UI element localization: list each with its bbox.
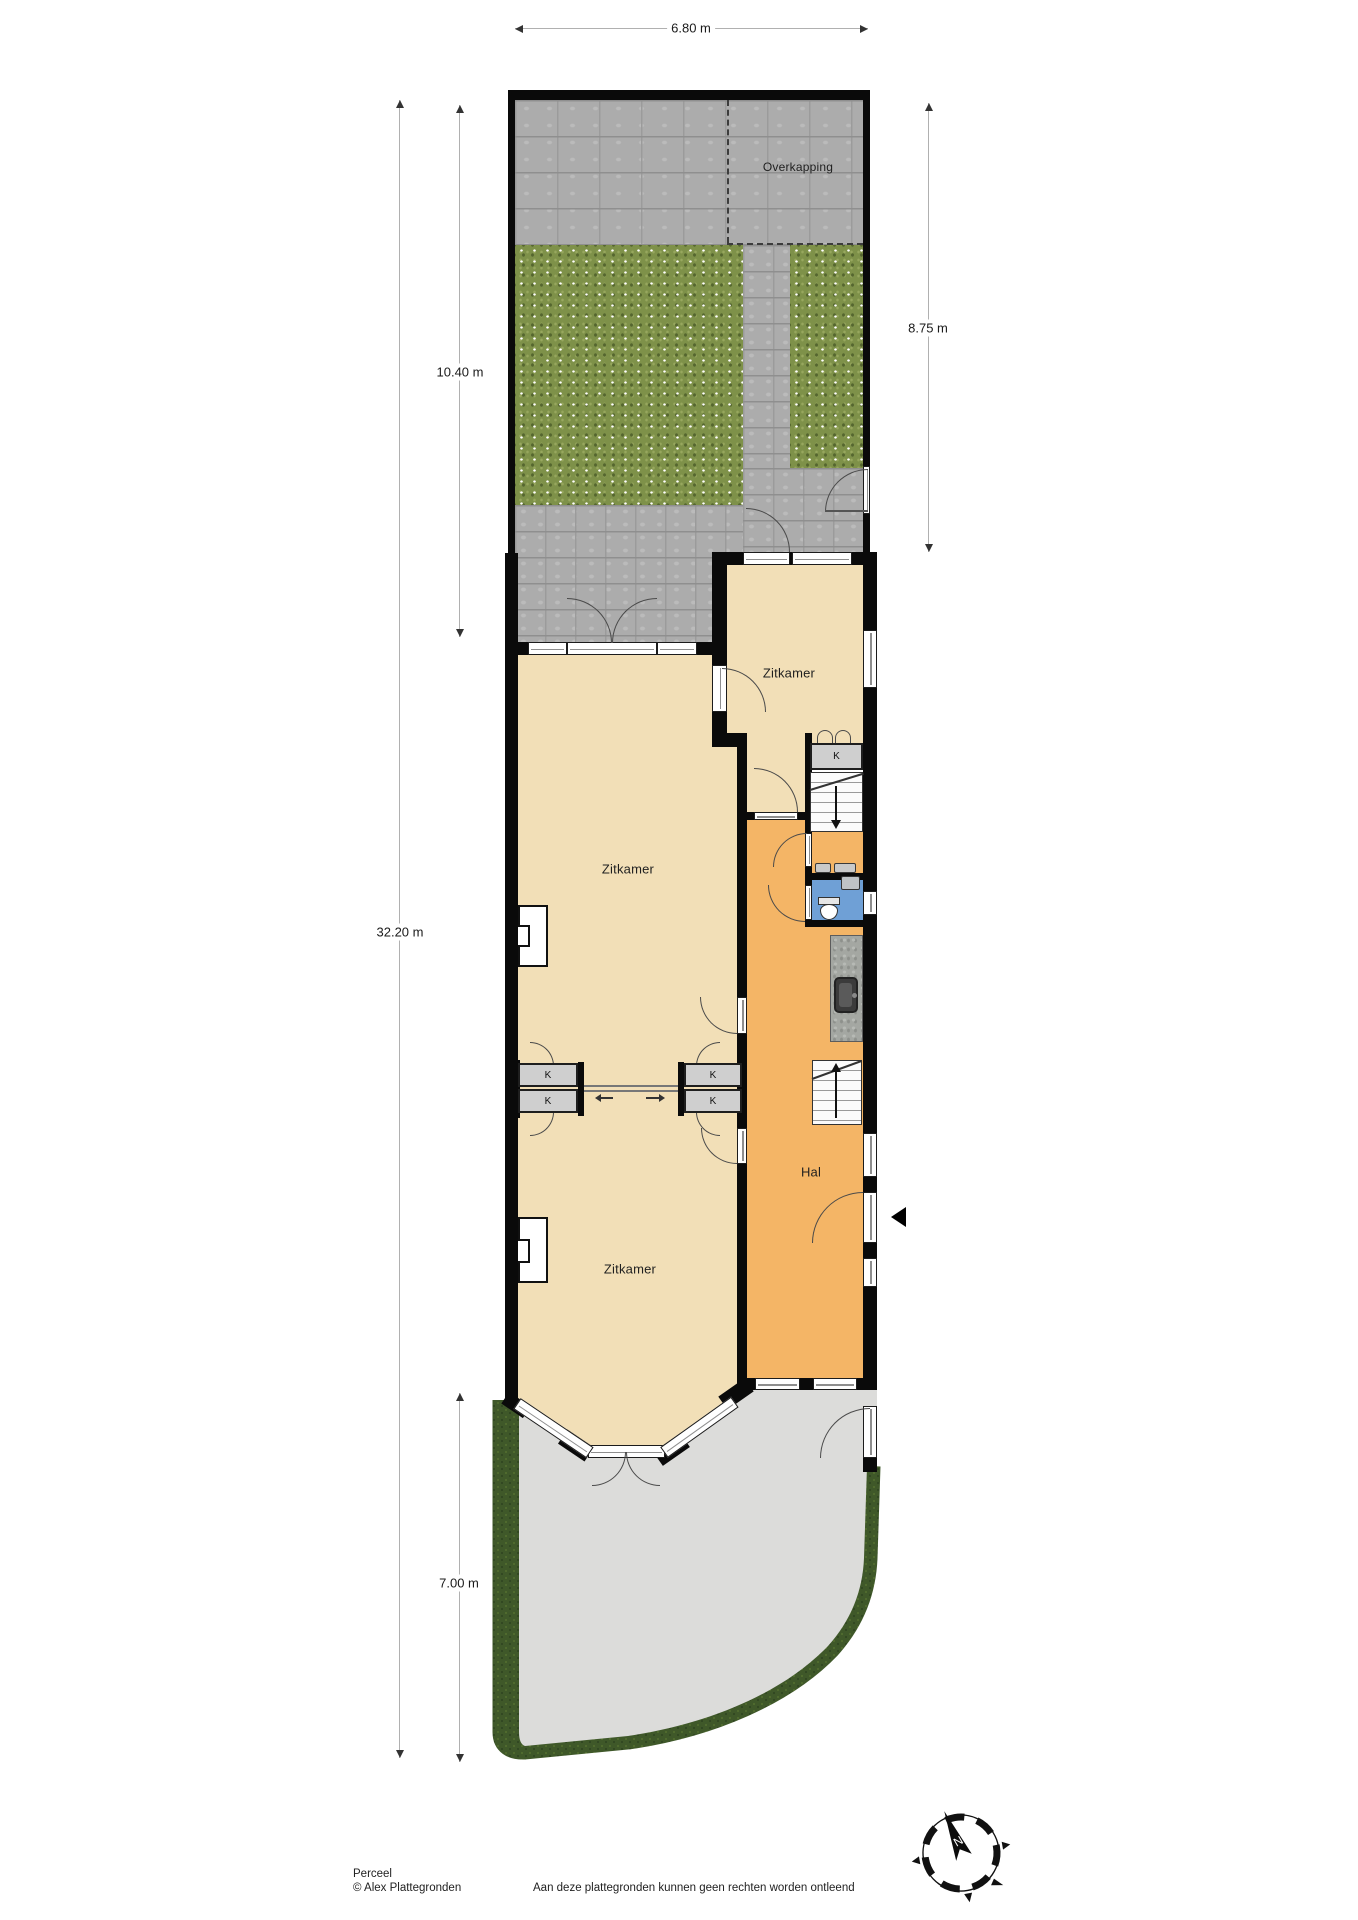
sliding-door-arrow-right-icon (659, 1094, 665, 1102)
room-label-zitkamer-back: Zitkamer (763, 666, 815, 681)
plan-copyright: © Alex Plattegronden (353, 1882, 461, 1894)
dimension-label-front-garden: 7.00 m (435, 1575, 483, 1592)
chimney-niche (518, 1239, 530, 1263)
sliding-door-track (584, 1090, 678, 1092)
dimension-arrow (925, 544, 933, 552)
dimension-label-back-garden-right: 8.75 m (904, 320, 952, 337)
kitchen-sink-basin (839, 983, 852, 1007)
kitchen-tap-icon (852, 993, 857, 998)
room-label-zitkamer-front: Zitkamer (604, 1262, 656, 1277)
door-frame (754, 812, 798, 820)
dimension-arrow (396, 100, 404, 108)
dimension-arrow (456, 1754, 464, 1762)
bifold-door-icon (817, 730, 833, 743)
wall (712, 710, 727, 735)
wall (712, 552, 727, 667)
staircase-direction-arrow (835, 786, 837, 822)
plan-disclaimer: Aan deze plattegronden kunnen geen recht… (533, 1882, 855, 1894)
door-frame (737, 997, 747, 1034)
window (863, 1133, 877, 1177)
zitkamer-back-floor (723, 565, 863, 743)
terrace-doors-opening (567, 642, 657, 655)
front-door-opening (863, 1192, 877, 1243)
window (657, 642, 697, 655)
sliding-door-track (584, 1085, 678, 1087)
kitchen-sink-icon (834, 977, 858, 1013)
staircase-direction-arrow (835, 1072, 837, 1118)
dimension-arrow (860, 25, 868, 33)
wall (508, 100, 515, 555)
closet: K (684, 1089, 742, 1113)
dimension-arrow (515, 25, 523, 33)
chimney-breast (518, 905, 548, 967)
closet: K (810, 743, 863, 770)
closet-label: K (545, 1070, 552, 1081)
window (813, 1378, 857, 1390)
window (528, 642, 567, 655)
window (863, 630, 877, 688)
sliding-door-arrow-left-icon (600, 1097, 613, 1099)
gate-leaf (825, 510, 868, 512)
window (755, 1378, 800, 1390)
window (863, 891, 877, 915)
garden-door-opening (743, 552, 790, 565)
wall (508, 90, 870, 100)
chimney-breast (518, 1217, 548, 1283)
bifold-door-icon (835, 730, 851, 743)
room-label-hal: Hal (801, 1165, 821, 1180)
wc-basin-icon (841, 876, 860, 890)
closet: K (518, 1089, 578, 1113)
closet: K (684, 1063, 742, 1087)
entrance-arrow-icon (891, 1207, 906, 1227)
sliding-door-arrow-right-icon (646, 1097, 659, 1099)
washbasin-icon (834, 863, 856, 873)
closet-label: K (545, 1096, 552, 1107)
closet: K (518, 1063, 578, 1087)
door-frame (737, 1128, 747, 1164)
dimension-arrow (456, 105, 464, 113)
garden-path (743, 245, 790, 505)
room-label-zitkamer-middle: Zitkamer (602, 862, 654, 877)
dimension-arrow (396, 1750, 404, 1758)
dimension-label-plot-width: 6.80 m (667, 20, 715, 37)
lawn-right (790, 245, 863, 468)
dimension-label-back-garden: 10.40 m (433, 364, 488, 381)
window (792, 552, 852, 565)
overkapping-boundary-vertical (727, 100, 729, 243)
staircase-direction-arrow (831, 1063, 841, 1072)
staircase-direction-arrow (831, 820, 841, 829)
wall (805, 920, 877, 927)
closet-label: K (710, 1096, 717, 1107)
wall (578, 1062, 584, 1116)
window (863, 1258, 877, 1287)
overkapping-boundary-horizontal (727, 243, 863, 245)
closet-label: K (833, 751, 840, 762)
overkapping-label: Overkapping (763, 160, 833, 174)
wall (737, 733, 747, 1388)
floorplan-canvas: Overkapping (0, 0, 1358, 1920)
gate-post (863, 1458, 877, 1472)
wall (505, 553, 518, 1405)
plan-title: Perceel (353, 1868, 392, 1880)
dimension-arrow (456, 1393, 464, 1401)
dimension-label-plot-depth: 32.20 m (373, 924, 428, 941)
closet-label: K (710, 1070, 717, 1081)
lawn-left (515, 245, 743, 505)
door-frame (805, 885, 812, 920)
washbasin-icon (815, 863, 831, 873)
chimney-niche (518, 925, 530, 947)
sliding-door-arrow-left-icon (595, 1094, 601, 1102)
dimension-arrow (925, 103, 933, 111)
dimension-arrow (456, 629, 464, 637)
compass-icon: N (905, 1795, 1017, 1907)
